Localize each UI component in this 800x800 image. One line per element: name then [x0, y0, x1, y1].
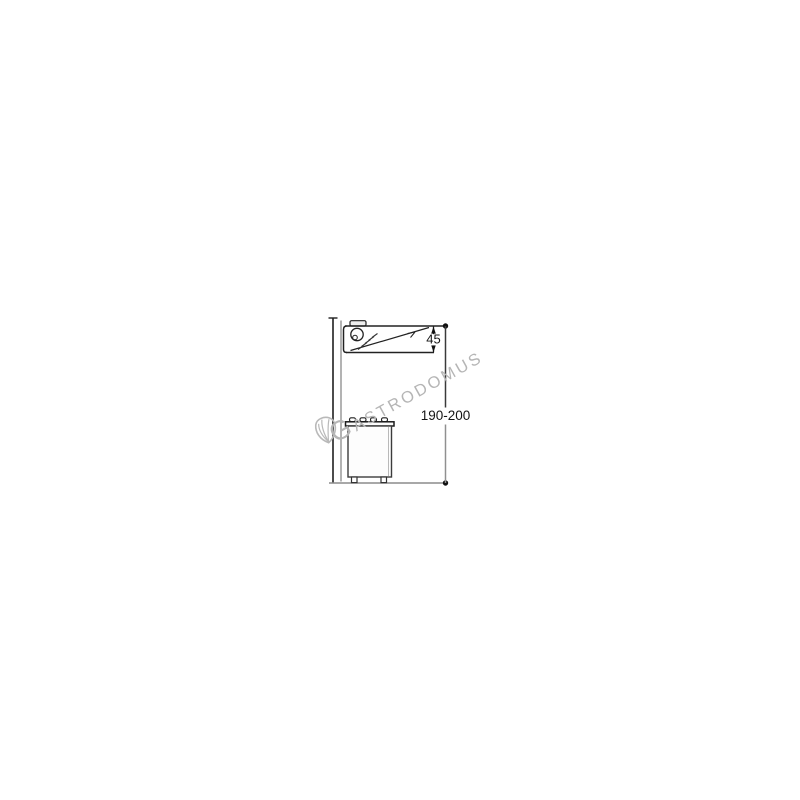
airflow-arrow-icon: [408, 332, 416, 338]
diagram-canvas: 45 190-200: [0, 0, 800, 800]
filter-hatch: [358, 334, 378, 350]
wall-reference-line: [329, 318, 338, 483]
dimension-installation-height: 190-200: [421, 323, 471, 483]
installation-height-label: 190-200: [421, 408, 471, 423]
hood-height-label: 45: [426, 332, 440, 347]
hood-back-edge: [344, 326, 347, 353]
floor-line: [329, 480, 448, 485]
cooker-feet: [352, 477, 387, 483]
hood-exhaust-collar: [350, 321, 366, 326]
fan-hub-circle: [353, 335, 358, 340]
dimension-hood-height: 45: [424, 327, 444, 353]
